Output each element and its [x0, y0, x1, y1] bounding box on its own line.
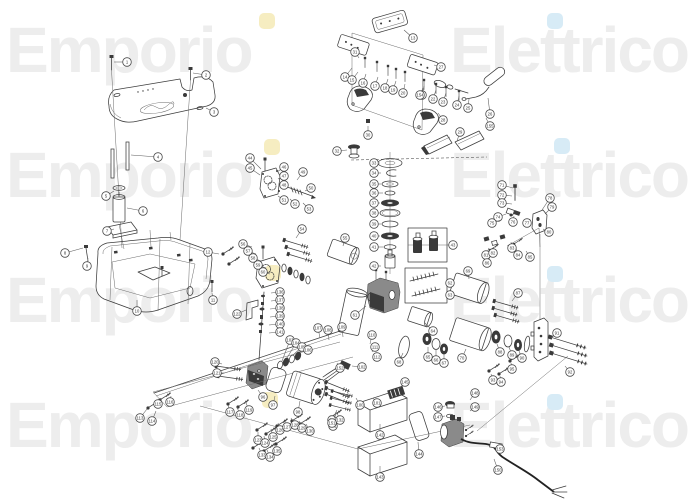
power-pump-unit — [441, 401, 474, 447]
svg-text:64: 64 — [431, 329, 436, 334]
svg-text:34: 34 — [372, 171, 377, 176]
part-callout: 24 — [453, 96, 462, 109]
part-callout: 71 — [498, 181, 513, 190]
part-callout: 150 — [494, 459, 503, 474]
svg-text:108: 108 — [325, 328, 333, 333]
svg-text:139: 139 — [277, 314, 285, 319]
svg-text:101: 101 — [374, 401, 382, 406]
part-callout: 12 — [204, 248, 219, 257]
spring-detail-box — [405, 268, 447, 303]
svg-text:80: 80 — [547, 230, 552, 235]
part-callout: 36 — [370, 189, 383, 198]
svg-text:68: 68 — [397, 360, 402, 365]
svg-text:22: 22 — [431, 97, 436, 102]
part-callout: 108 — [324, 326, 333, 340]
part-callout: 9 — [83, 258, 92, 270]
svg-text:62: 62 — [448, 281, 453, 286]
seal-ring-cascade — [397, 333, 448, 359]
part-callout: 143 — [376, 466, 385, 481]
part-callout: 8 — [61, 248, 83, 257]
svg-text:154: 154 — [417, 93, 425, 98]
svg-text:93: 93 — [491, 378, 496, 383]
cover-box-upper — [358, 391, 407, 432]
svg-text:110: 110 — [369, 333, 376, 338]
svg-text:94: 94 — [499, 380, 504, 385]
svg-text:136: 136 — [277, 290, 285, 295]
svg-text:33: 33 — [372, 161, 377, 166]
svg-text:65: 65 — [426, 355, 431, 360]
svg-text:130: 130 — [307, 429, 315, 434]
svg-text:149: 149 — [472, 405, 480, 410]
part-callout: 139 — [270, 312, 284, 321]
exploded-diagram: 1234567891011121314151617181920212223242… — [0, 0, 694, 500]
svg-text:91: 91 — [555, 331, 560, 336]
part-callout: 93 — [489, 374, 498, 384]
control-handle — [462, 65, 507, 100]
svg-text:31: 31 — [353, 50, 358, 55]
part-callout: 110 — [368, 331, 377, 344]
part-callout: 49 — [297, 168, 307, 180]
part-callout: 13 — [404, 30, 417, 42]
part-callout: 140 — [269, 320, 284, 329]
svg-text:88: 88 — [498, 350, 503, 355]
svg-text:16: 16 — [361, 81, 366, 86]
part-callout: 40 — [370, 232, 380, 241]
part-callout: 100 — [356, 398, 365, 409]
svg-text:140: 140 — [277, 322, 285, 327]
part-callout: 65 — [424, 347, 433, 361]
standoff-rod — [111, 142, 129, 178]
part-callout: 37 — [370, 199, 380, 208]
svg-text:119: 119 — [246, 408, 253, 413]
svg-text:100: 100 — [357, 403, 365, 408]
part-callout: 112 — [373, 353, 382, 362]
hydraulic-cylinder — [327, 239, 494, 352]
svg-text:75: 75 — [490, 221, 495, 226]
part-callout: 136 — [271, 288, 284, 297]
svg-text:45: 45 — [248, 166, 253, 171]
svg-text:127: 127 — [284, 425, 292, 430]
svg-text:44: 44 — [248, 156, 253, 161]
svg-text:147: 147 — [435, 415, 443, 420]
part-callout: 91 — [551, 329, 561, 338]
fastener-screw — [146, 354, 520, 453]
svg-text:151: 151 — [329, 421, 337, 426]
part-callout: 43 — [447, 241, 457, 250]
part-callout: 137 — [271, 296, 284, 305]
svg-text:70: 70 — [460, 356, 465, 361]
wedge-pad — [421, 131, 484, 155]
end-flange — [477, 299, 587, 431]
svg-text:112: 112 — [374, 355, 381, 360]
part-callout: 130 — [306, 424, 315, 435]
svg-text:50: 50 — [309, 186, 314, 191]
svg-text:15: 15 — [350, 78, 355, 83]
svg-text:36: 36 — [372, 191, 377, 196]
svg-text:124: 124 — [262, 441, 270, 446]
part-callout: 117 — [226, 405, 235, 416]
part-callout: 45 — [246, 164, 260, 175]
part-callout: 102 — [352, 363, 366, 372]
part-callout: 33 — [370, 159, 380, 168]
part-callout: 5 — [102, 191, 114, 200]
part-callout: 29 — [456, 128, 465, 141]
svg-text:61: 61 — [353, 313, 358, 318]
part-callout: 147 — [434, 413, 445, 422]
svg-text:138: 138 — [277, 306, 285, 311]
svg-text:23: 23 — [441, 100, 446, 105]
svg-text:13: 13 — [411, 36, 416, 41]
svg-text:26: 26 — [488, 112, 493, 117]
part-callout: 52 — [290, 199, 299, 208]
part-callout: 6 — [127, 207, 147, 216]
svg-text:37: 37 — [372, 201, 377, 206]
svg-text:12: 12 — [206, 250, 211, 255]
svg-text:76: 76 — [511, 220, 516, 225]
svg-text:113: 113 — [137, 416, 144, 421]
part-callout: 87 — [512, 289, 522, 301]
part-callout: 25 — [464, 99, 473, 112]
part-callout: 17 — [371, 77, 380, 90]
part-callout: 19 — [389, 81, 398, 94]
cover-gasket — [408, 411, 430, 442]
part-callout: 138 — [270, 304, 284, 313]
svg-text:107: 107 — [315, 326, 323, 331]
svg-text:148: 148 — [472, 391, 480, 396]
part-callout: 77 — [523, 219, 532, 228]
svg-text:121: 121 — [214, 371, 222, 376]
svg-text:54: 54 — [300, 227, 305, 232]
part-callout: 153 — [496, 445, 505, 454]
svg-text:95: 95 — [510, 367, 515, 372]
svg-text:116: 116 — [167, 400, 174, 405]
part-callout: 28 — [438, 113, 447, 124]
svg-text:111: 111 — [372, 345, 379, 350]
svg-text:114: 114 — [149, 419, 156, 424]
power-cable — [461, 439, 567, 498]
svg-text:58: 58 — [251, 256, 256, 261]
svg-text:86: 86 — [485, 261, 490, 266]
svg-text:71: 71 — [500, 183, 505, 188]
fastener-screw — [282, 238, 312, 263]
svg-text:30: 30 — [366, 133, 371, 138]
part-callout: 144 — [415, 442, 424, 458]
svg-text:84: 84 — [516, 253, 521, 258]
center-pump-body — [367, 269, 400, 313]
svg-text:102: 102 — [359, 365, 367, 370]
svg-text:77: 77 — [525, 221, 530, 226]
svg-text:18: 18 — [383, 86, 388, 91]
svg-text:10: 10 — [135, 309, 140, 314]
svg-text:106: 106 — [305, 348, 313, 353]
svg-text:52: 52 — [293, 202, 298, 207]
part-callout: 73 — [498, 199, 512, 208]
svg-text:48: 48 — [282, 183, 287, 188]
part-callout: 20 — [399, 84, 408, 97]
part-callout: 85 — [526, 251, 535, 261]
svg-text:39: 39 — [372, 222, 377, 227]
svg-text:109: 109 — [339, 325, 347, 330]
part-callout: 32 — [333, 147, 347, 156]
part-callout: 16 — [359, 74, 368, 87]
svg-text:74: 74 — [496, 215, 501, 220]
rocker-pedal-right — [413, 109, 438, 135]
part-callout: 142 — [376, 424, 385, 439]
part-callout: 66 — [432, 350, 441, 364]
svg-text:79: 79 — [550, 205, 555, 210]
svg-text:56: 56 — [241, 242, 246, 247]
part-callout: 39 — [370, 220, 381, 229]
part-callout: 114 — [148, 411, 157, 425]
svg-text:153: 153 — [497, 447, 505, 452]
part-callout: 118 — [236, 407, 245, 419]
part-callout: 146 — [434, 403, 445, 412]
svg-text:142: 142 — [377, 433, 385, 438]
part-callout: 18 — [381, 79, 390, 92]
svg-text:46: 46 — [282, 165, 287, 170]
part-callout: 1 — [114, 58, 131, 67]
part-callout: 4 — [131, 153, 162, 162]
part-callout: 96 — [258, 390, 267, 401]
part-callout: 107 — [314, 324, 323, 338]
part-callout: 53 — [303, 203, 313, 213]
svg-text:38: 38 — [372, 211, 377, 216]
part-callout: 90 — [518, 351, 527, 362]
cover-box-lower — [358, 435, 407, 476]
svg-text:47: 47 — [282, 174, 287, 179]
brand-logo-script — [139, 100, 174, 115]
svg-text:72: 72 — [500, 193, 505, 198]
svg-text:137: 137 — [277, 298, 285, 303]
svg-text:24: 24 — [455, 103, 460, 108]
svg-text:150: 150 — [495, 468, 503, 473]
part-callout: 152 — [336, 363, 345, 372]
svg-text:32: 32 — [335, 149, 340, 154]
part-callout: 72 — [498, 191, 512, 200]
top-cover-plate — [109, 77, 216, 122]
svg-text:40: 40 — [372, 234, 377, 239]
part-callout: 63 — [446, 291, 455, 300]
part-callout: 76 — [509, 216, 518, 226]
part-callout: 133 — [258, 448, 267, 459]
part-callout: 11 — [209, 293, 218, 304]
svg-text:115: 115 — [155, 402, 162, 407]
part-callout: 50 — [305, 184, 315, 193]
part-callout: 42 — [370, 262, 381, 271]
part-callout: 119 — [245, 403, 254, 414]
svg-text:17: 17 — [373, 84, 378, 89]
part-callout: 111 — [371, 343, 380, 352]
svg-text:42: 42 — [372, 264, 377, 269]
svg-text:155: 155 — [487, 124, 495, 129]
svg-text:69: 69 — [466, 269, 471, 274]
svg-text:92: 92 — [568, 370, 573, 375]
part-callout: 116 — [166, 396, 175, 406]
svg-text:27: 27 — [439, 65, 444, 70]
svg-text:118: 118 — [237, 413, 244, 418]
part-callout: 80 — [543, 228, 553, 237]
svg-text:25: 25 — [466, 106, 471, 111]
part-callout: 62 — [446, 279, 455, 288]
svg-text:90: 90 — [520, 356, 525, 361]
piston-detail-box — [408, 228, 447, 262]
svg-text:85: 85 — [528, 255, 533, 260]
svg-text:117: 117 — [227, 410, 234, 415]
svg-text:134: 134 — [267, 455, 275, 460]
part-callout: 26 — [486, 98, 495, 118]
svg-text:141: 141 — [277, 330, 285, 335]
part-callout: 135 — [273, 444, 282, 455]
svg-text:120: 120 — [212, 360, 220, 365]
svg-text:132: 132 — [337, 418, 345, 423]
svg-text:83: 83 — [510, 246, 515, 251]
svg-text:49: 49 — [301, 170, 306, 175]
electric-motor — [276, 351, 350, 406]
part-callout: 34 — [370, 169, 381, 178]
svg-text:145: 145 — [402, 380, 410, 385]
part-callout: 41 — [370, 243, 383, 252]
svg-text:78: 78 — [548, 196, 553, 201]
filter-canister — [113, 186, 125, 249]
part-callout: 70 — [458, 349, 467, 362]
svg-text:87: 87 — [516, 291, 521, 296]
part-callout: 79 — [545, 203, 556, 214]
part-callout: 149 — [470, 403, 479, 412]
part-callout: 51 — [278, 196, 288, 205]
filler-cap — [348, 144, 360, 158]
svg-text:125: 125 — [270, 435, 278, 440]
svg-text:35: 35 — [372, 182, 377, 187]
part-callout: 88 — [496, 344, 505, 356]
seal-washer-stack — [378, 152, 402, 274]
part-callout: 60 — [259, 268, 270, 277]
part-callout: 35 — [370, 180, 381, 189]
svg-text:67: 67 — [442, 361, 447, 366]
svg-text:57: 57 — [246, 249, 251, 254]
svg-text:19: 19 — [391, 88, 396, 93]
svg-text:122: 122 — [234, 312, 242, 317]
svg-text:152: 152 — [337, 366, 345, 371]
part-callout: 97 — [269, 396, 278, 409]
vent-grille — [387, 386, 405, 400]
svg-text:14: 14 — [343, 75, 348, 80]
part-callout: 95 — [508, 363, 517, 373]
part-callout: 46 — [277, 163, 288, 172]
part-callout: 101 — [373, 398, 382, 407]
svg-text:55: 55 — [343, 236, 348, 241]
part-callout: 48 — [279, 181, 288, 190]
part-callout: 38 — [370, 209, 379, 218]
svg-text:97: 97 — [271, 403, 276, 408]
svg-text:66: 66 — [434, 358, 439, 363]
svg-text:51: 51 — [282, 198, 287, 203]
svg-text:129: 129 — [299, 426, 307, 431]
svg-text:59: 59 — [256, 263, 261, 268]
part-callout: 113 — [136, 409, 147, 422]
svg-text:146: 146 — [435, 405, 443, 410]
svg-text:81: 81 — [484, 253, 489, 258]
svg-text:41: 41 — [372, 245, 377, 250]
part-callout: 15 — [348, 72, 358, 84]
svg-text:73: 73 — [500, 201, 505, 206]
svg-text:20: 20 — [401, 91, 406, 96]
svg-text:11: 11 — [211, 298, 216, 303]
svg-text:133: 133 — [259, 453, 267, 458]
svg-text:96: 96 — [261, 395, 266, 400]
part-callout: 92 — [565, 366, 574, 376]
svg-text:98: 98 — [296, 410, 301, 415]
part-callout: 155 — [486, 118, 495, 130]
svg-text:63: 63 — [448, 293, 453, 298]
part-callout: 141 — [269, 328, 284, 337]
part-callout: 145 — [399, 378, 409, 389]
part-callout: 3 — [206, 108, 218, 117]
svg-text:53: 53 — [307, 207, 312, 212]
part-callout: 2 — [193, 71, 210, 80]
svg-text:135: 135 — [274, 449, 282, 454]
part-callout: 120 — [211, 358, 222, 367]
part-callout: 98 — [294, 401, 303, 416]
part-callout: 132 — [336, 413, 345, 424]
parts-diagram-page: Emporio Elettrico Emporio Elettrico Empo… — [0, 0, 694, 500]
pedal-plate-top — [371, 10, 408, 34]
part-callout: 94 — [497, 376, 506, 386]
part-callout: 67 — [440, 354, 449, 367]
part-callout: 54 — [296, 225, 306, 238]
svg-text:82: 82 — [491, 251, 496, 256]
svg-text:28: 28 — [441, 118, 446, 123]
part-callout: 148 — [470, 389, 479, 400]
svg-text:29: 29 — [458, 130, 463, 135]
svg-text:43: 43 — [451, 243, 456, 248]
part-callout: 122 — [233, 310, 246, 319]
valve-block — [246, 292, 268, 389]
svg-text:144: 144 — [416, 452, 424, 457]
svg-text:60: 60 — [261, 270, 266, 275]
svg-text:143: 143 — [377, 475, 385, 480]
svg-text:89: 89 — [510, 353, 515, 358]
part-callout: 10 — [133, 300, 142, 315]
part-callout: 82 — [489, 247, 498, 257]
part-callout: 30 — [364, 126, 373, 139]
